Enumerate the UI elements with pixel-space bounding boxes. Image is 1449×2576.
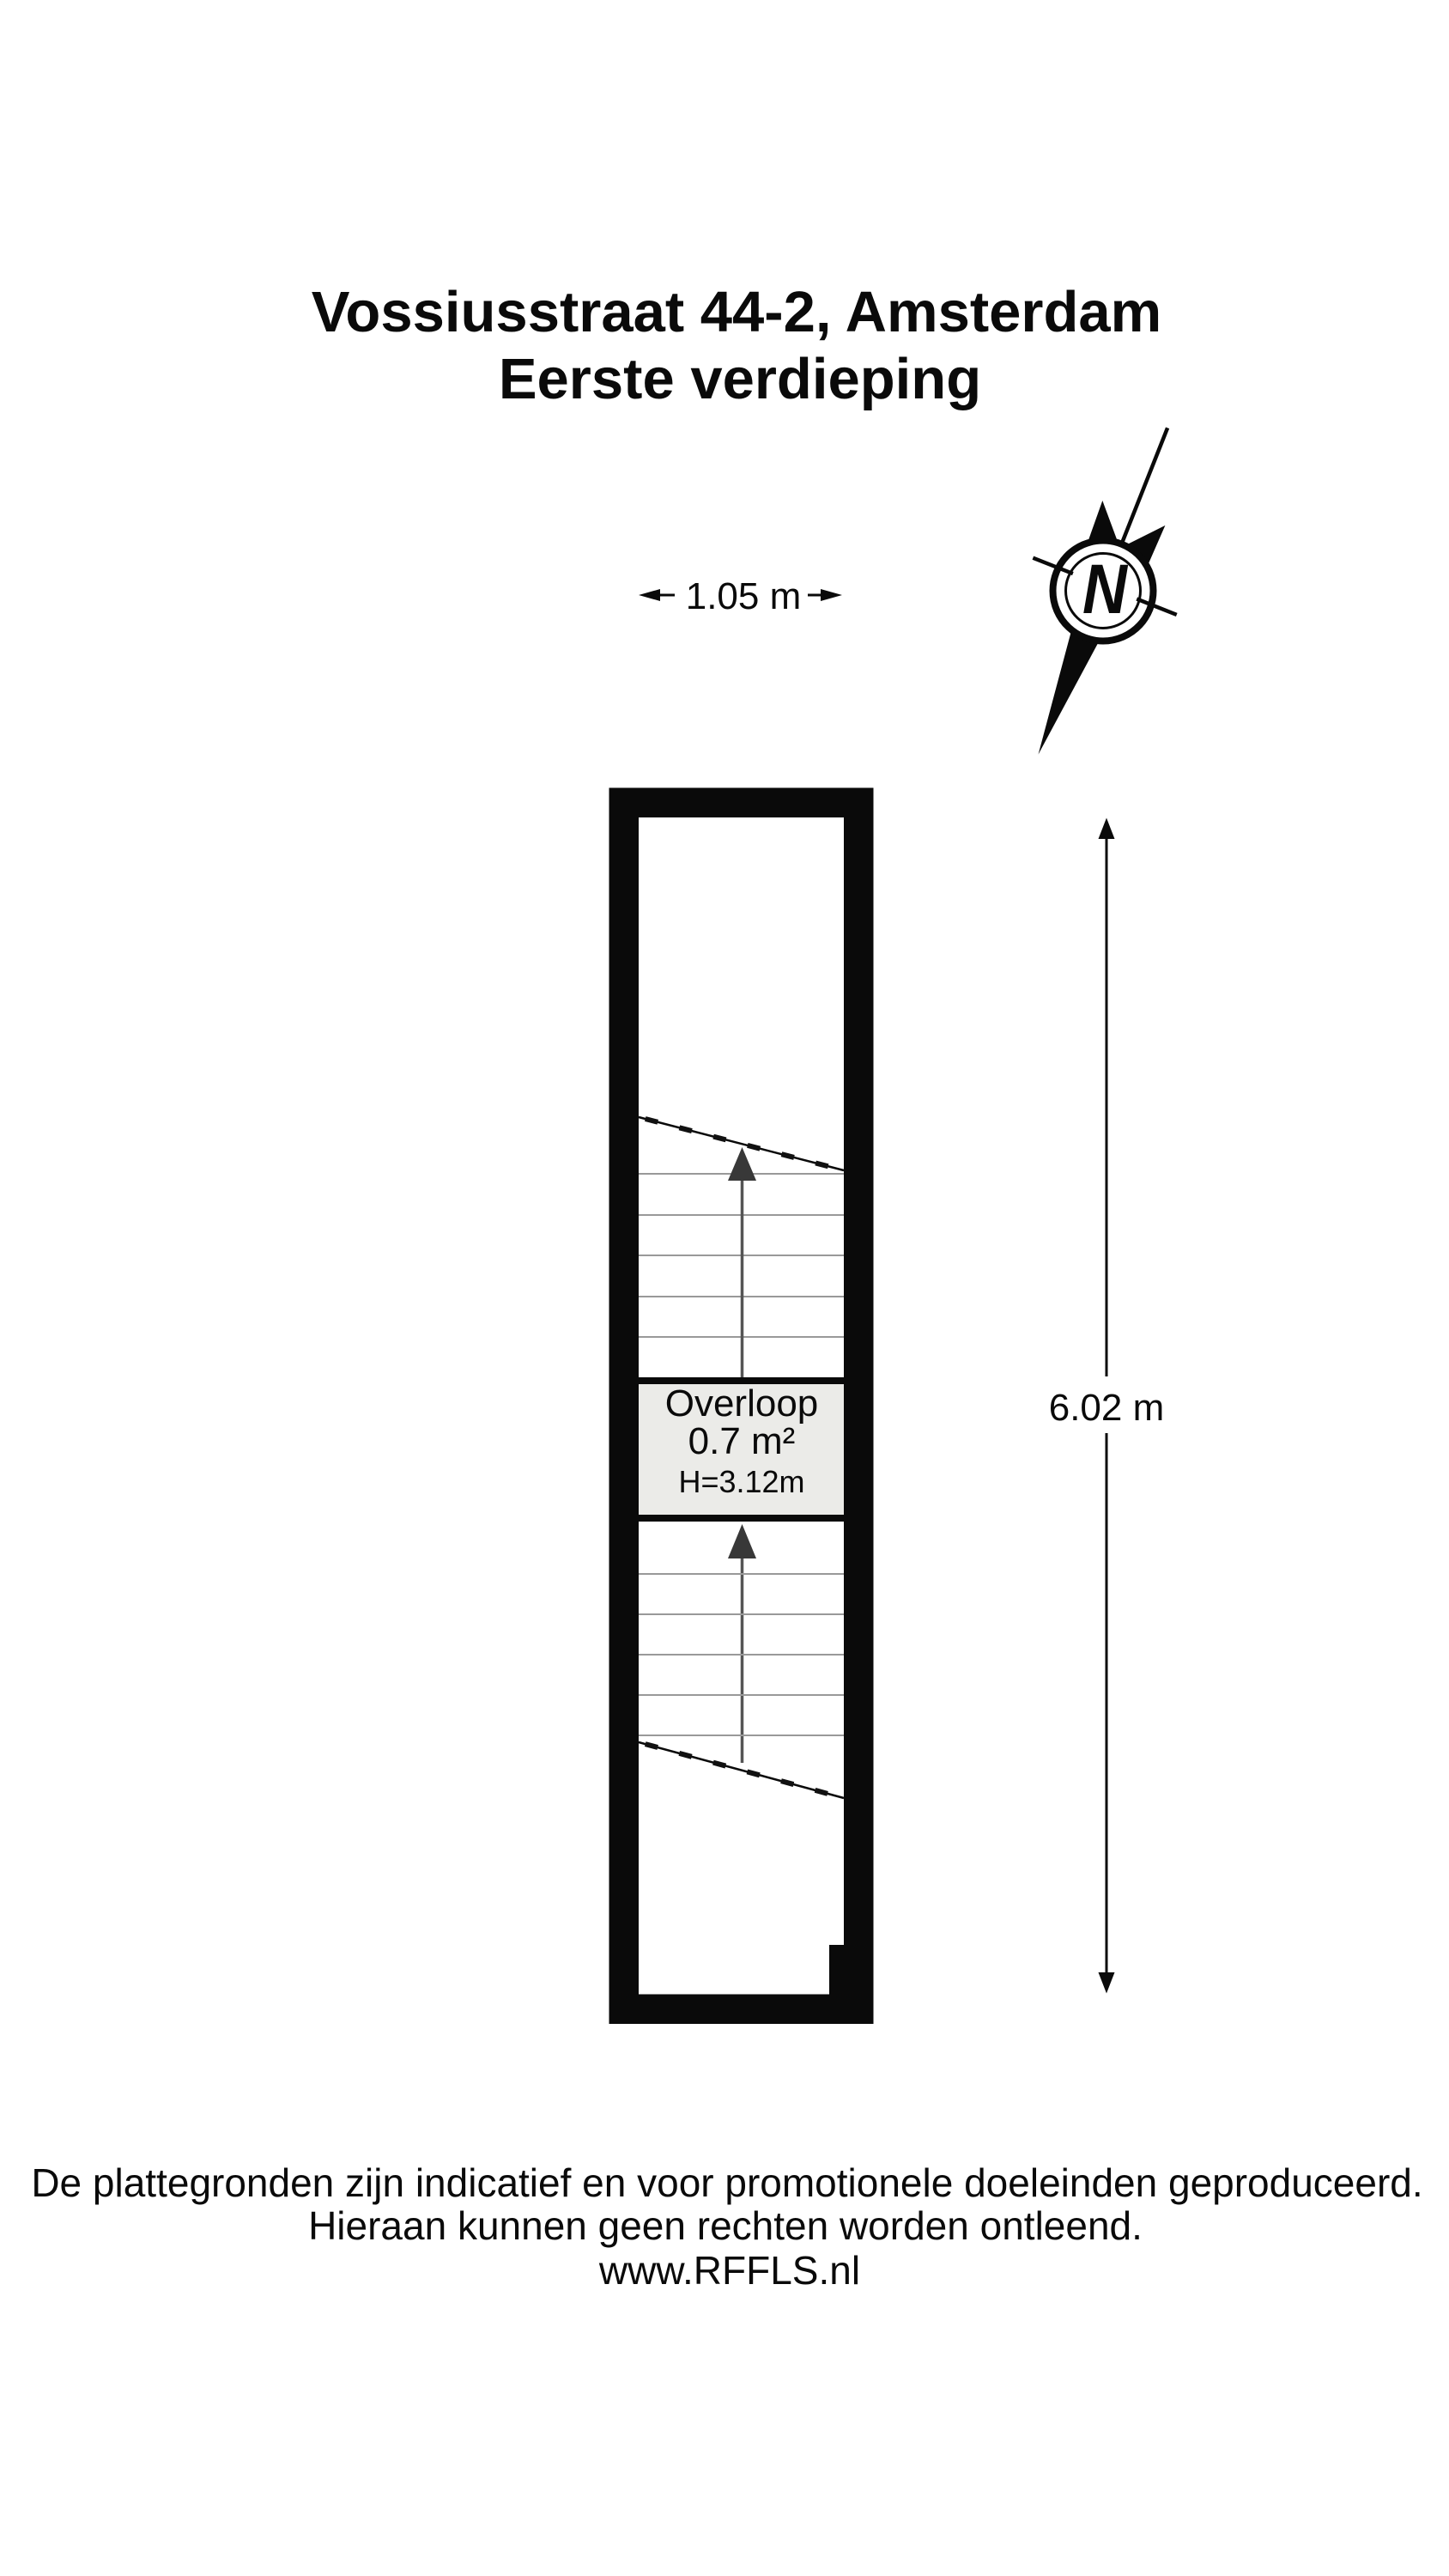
svg-text:De plattegronden zijn indicati: De plattegronden zijn indicatief en voor… <box>31 2160 1422 2205</box>
svg-text:0.7 m²: 0.7 m² <box>688 1420 796 1462</box>
svg-text:Vossiusstraat 44-2, Amsterdam: Vossiusstraat 44-2, Amsterdam <box>312 280 1162 344</box>
svg-text:Overloop: Overloop <box>665 1382 819 1425</box>
svg-text:Eerste verdieping: Eerste verdieping <box>499 347 981 411</box>
svg-text:N: N <box>1082 550 1129 629</box>
svg-text:www.RFFLS.nl: www.RFFLS.nl <box>598 2248 860 2293</box>
svg-text:H=3.12m: H=3.12m <box>678 1464 804 1499</box>
svg-text:Hieraan kunnen geen rechten wo: Hieraan kunnen geen rechten worden ontle… <box>308 2203 1143 2248</box>
svg-text:6.02 m: 6.02 m <box>1049 1387 1165 1429</box>
svg-text:1.05 m: 1.05 m <box>686 575 802 617</box>
